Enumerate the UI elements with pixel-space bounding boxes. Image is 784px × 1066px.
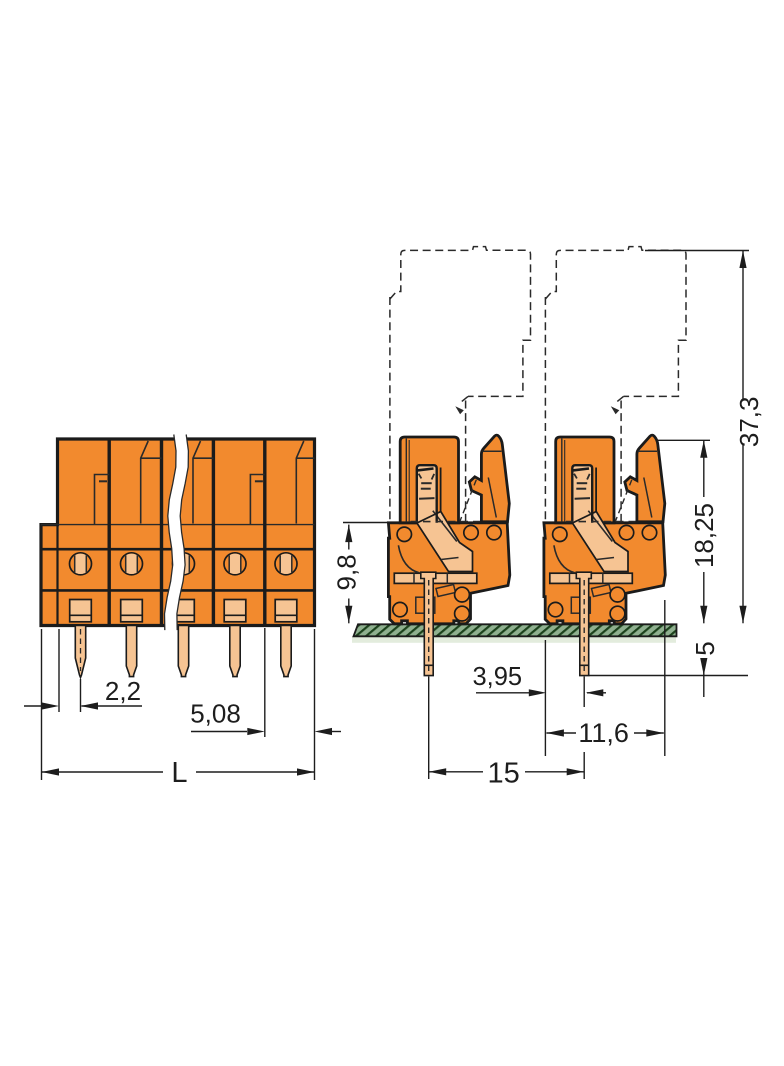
svg-text:3,95: 3,95 <box>472 663 522 691</box>
svg-text:5: 5 <box>690 641 720 655</box>
svg-text:L: L <box>171 757 187 789</box>
svg-text:11,6: 11,6 <box>578 718 629 748</box>
svg-text:9,8: 9,8 <box>332 554 362 590</box>
svg-text:37,3: 37,3 <box>734 396 764 447</box>
svg-text:15: 15 <box>487 758 519 790</box>
svg-text:18,25: 18,25 <box>689 503 719 568</box>
svg-text:2,2: 2,2 <box>105 676 141 706</box>
svg-text:5,08: 5,08 <box>190 699 241 729</box>
